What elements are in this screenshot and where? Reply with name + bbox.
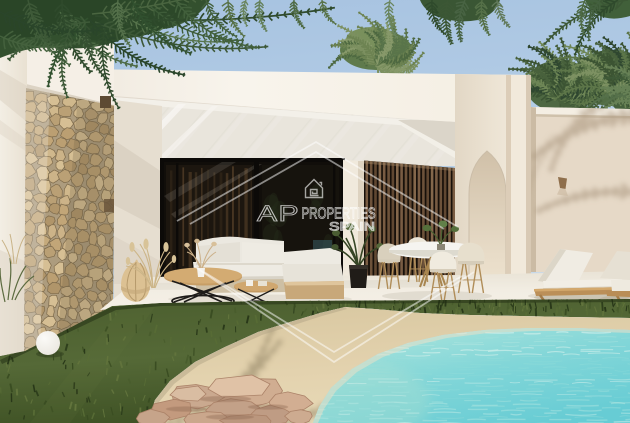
- svg-text:SPAIN: SPAIN: [329, 222, 375, 234]
- svg-text:AP: AP: [257, 201, 300, 226]
- svg-text:PROPERTIES: PROPERTIES: [302, 206, 376, 223]
